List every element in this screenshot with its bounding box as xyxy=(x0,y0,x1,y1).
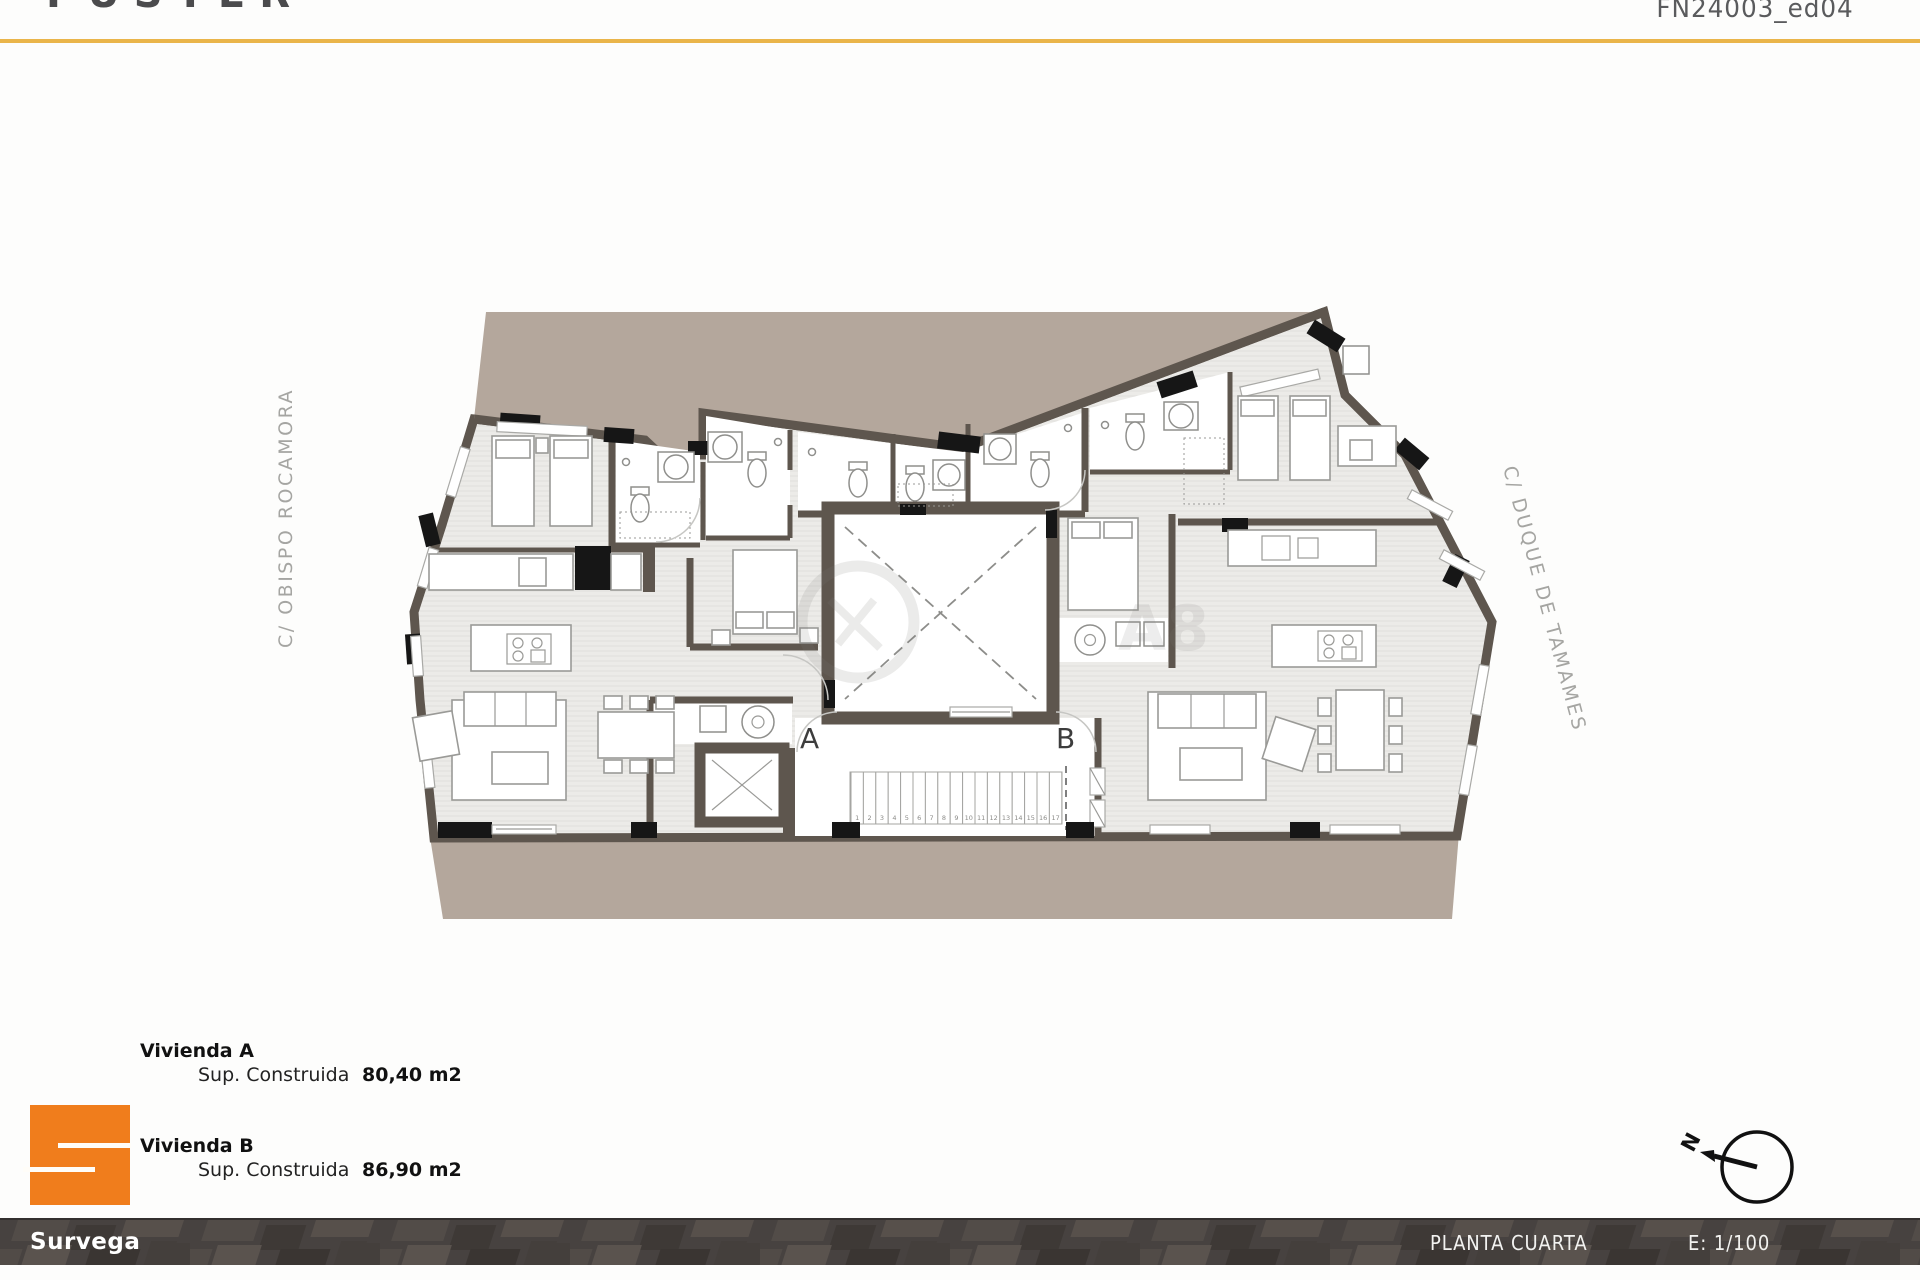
footer-scale: E: 1/100 xyxy=(1688,1231,1770,1255)
footer-sheet-title: PLANTA CUARTA xyxy=(1430,1231,1588,1255)
footer-company: Survega xyxy=(30,1229,140,1255)
courtyard-lightwell xyxy=(824,504,1057,718)
svg-text:16: 16 xyxy=(1039,814,1047,822)
svg-text:6: 6 xyxy=(917,814,921,822)
svg-text:15: 15 xyxy=(1027,814,1035,822)
svg-text:2: 2 xyxy=(868,814,872,822)
legend-unit-a-metric: Sup. Construida xyxy=(198,1064,349,1086)
legend-unit-a-name: Vivienda A xyxy=(140,1040,254,1062)
svg-text:12: 12 xyxy=(989,814,997,822)
title-block-bar: Survega PLANTA CUARTA E: 1/100 xyxy=(0,1218,1920,1265)
unit-a-label: A xyxy=(800,722,819,755)
svg-text:1: 1 xyxy=(855,814,859,822)
elevator xyxy=(700,748,784,822)
unit-b-label: B xyxy=(1056,722,1075,755)
svg-text:17: 17 xyxy=(1051,814,1059,822)
survega-logo xyxy=(30,1105,130,1205)
svg-text:8: 8 xyxy=(942,814,946,822)
legend-unit-a-value: 80,40 m2 xyxy=(362,1064,462,1086)
svg-text:13: 13 xyxy=(1002,814,1010,822)
svg-text:5: 5 xyxy=(905,814,909,822)
watermark-text: A8 xyxy=(1118,592,1209,665)
legend-unit-b-value: 86,90 m2 xyxy=(362,1159,462,1181)
legend-unit-b-metric: Sup. Construida xyxy=(198,1159,349,1181)
survega-logo-bar-bottom xyxy=(23,1167,95,1172)
svg-text:9: 9 xyxy=(954,814,958,822)
site-mass-bottom xyxy=(430,833,1459,919)
footer-camo-pattern xyxy=(0,1220,1920,1265)
floor-plan-drawing: 1234567891011121314151617 xyxy=(0,0,1920,1280)
svg-text:11: 11 xyxy=(977,814,985,822)
svg-text:3: 3 xyxy=(880,814,884,822)
north-compass: N xyxy=(1676,1129,1792,1202)
svg-text:10: 10 xyxy=(965,814,973,822)
svg-text:14: 14 xyxy=(1014,814,1022,822)
survega-logo-bar-top xyxy=(58,1143,131,1148)
north-label: N xyxy=(1676,1129,1705,1156)
stair-treads: 1234567891011121314151617 xyxy=(851,772,1062,824)
svg-text:7: 7 xyxy=(930,814,934,822)
street-label-right: C/ DUQUE DE TAMAMES xyxy=(1498,464,1590,735)
street-label-left: C/ OBISPO ROCAMORA xyxy=(275,388,297,648)
legend-unit-b-name: Vivienda B xyxy=(140,1135,254,1157)
svg-text:4: 4 xyxy=(892,814,896,822)
stairwell: 1234567891011121314151617 xyxy=(850,766,1066,830)
